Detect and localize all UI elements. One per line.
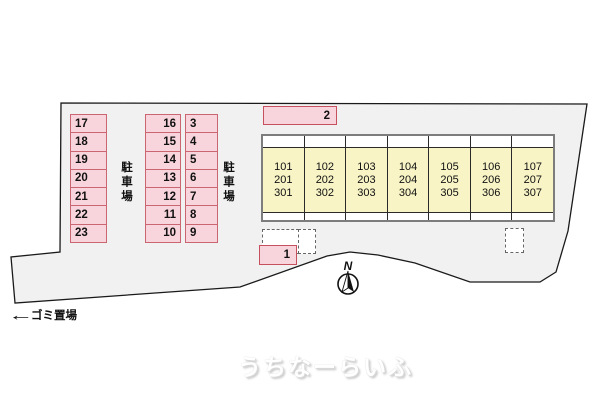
unit-corridor xyxy=(512,212,553,220)
unit-label: 104 204 304 xyxy=(388,148,429,212)
north-compass: N xyxy=(333,258,363,298)
unit-corridor xyxy=(305,212,346,220)
parking-space-18: 18 xyxy=(70,132,107,151)
stairs-outline-left-b xyxy=(298,229,316,254)
site-plan: 17 18 19 20 21 22 23 駐車場 16 15 14 13 12 … xyxy=(0,0,600,400)
building-unit-6: 106 206 306 xyxy=(471,136,513,220)
parking-space-15: 15 xyxy=(145,132,181,151)
garbage-area: ← ゴミ置場 xyxy=(8,307,77,323)
parking-space-17: 17 xyxy=(70,114,107,133)
parking-space-5: 5 xyxy=(185,151,218,170)
unit-corridor xyxy=(388,212,429,220)
parking-space-8: 8 xyxy=(185,205,218,224)
parking-space-21: 21 xyxy=(70,187,107,206)
unit-balcony xyxy=(429,136,470,148)
parking-space-9: 9 xyxy=(185,224,218,243)
watermark: うちなーらいふ xyxy=(238,348,413,382)
building-unit-1: 101 201 301 xyxy=(263,136,305,220)
building-unit-3: 103 203 303 xyxy=(346,136,388,220)
parking-space-22: 22 xyxy=(70,205,107,224)
parking-space-19: 19 xyxy=(70,151,107,170)
unit-balcony xyxy=(346,136,387,148)
parking-column-right: 3 4 5 6 7 8 9 xyxy=(185,114,218,243)
building-unit-4: 104 204 304 xyxy=(388,136,430,220)
parking-space-12: 12 xyxy=(145,187,181,206)
parking-space-16: 16 xyxy=(145,114,181,133)
unit-label: 106 206 306 xyxy=(471,148,512,212)
parking-space-11: 11 xyxy=(145,205,181,224)
parking-space-4: 4 xyxy=(185,132,218,151)
building: 101 201 301 102 202 302 103 203 303 104 … xyxy=(261,134,555,222)
unit-label: 105 205 305 xyxy=(429,148,470,212)
unit-label: 107 207 307 xyxy=(512,148,553,212)
unit-balcony xyxy=(471,136,512,148)
unit-balcony xyxy=(305,136,346,148)
parking-column-middle: 16 15 14 13 12 11 10 xyxy=(145,114,181,243)
building-unit-2: 102 202 302 xyxy=(305,136,347,220)
parking-space-13: 13 xyxy=(145,169,181,188)
parking-space-6: 6 xyxy=(185,169,218,188)
unit-balcony xyxy=(263,136,304,148)
parking-space-7: 7 xyxy=(185,187,218,206)
unit-corridor xyxy=(471,212,512,220)
parking-space-1: 1 xyxy=(259,245,297,265)
garbage-area-label: ゴミ置場 xyxy=(31,307,77,323)
parking-space-14: 14 xyxy=(145,151,181,170)
stairs-outline-right xyxy=(505,228,524,253)
parking-area-label-left: 駐車場 xyxy=(119,161,132,205)
unit-balcony xyxy=(512,136,553,148)
unit-corridor xyxy=(263,212,304,220)
parking-space-20: 20 xyxy=(70,169,107,188)
parking-space-23: 23 xyxy=(70,224,107,243)
unit-corridor xyxy=(346,212,387,220)
parking-area-label-right: 駐車場 xyxy=(221,161,234,205)
parking-space-10: 10 xyxy=(145,224,181,243)
parking-space-2: 2 xyxy=(263,106,337,125)
unit-balcony xyxy=(388,136,429,148)
compass-north-label: N xyxy=(344,259,353,273)
building-unit-5: 105 205 305 xyxy=(429,136,471,220)
parking-space-3: 3 xyxy=(185,114,218,133)
left-arrow-icon: ← xyxy=(8,308,34,323)
parking-column-left: 17 18 19 20 21 22 23 xyxy=(70,114,107,243)
unit-label: 101 201 301 xyxy=(263,148,304,212)
unit-corridor xyxy=(429,212,470,220)
building-unit-7: 107 207 307 xyxy=(512,136,553,220)
unit-label: 102 202 302 xyxy=(305,148,346,212)
unit-label: 103 203 303 xyxy=(346,148,387,212)
